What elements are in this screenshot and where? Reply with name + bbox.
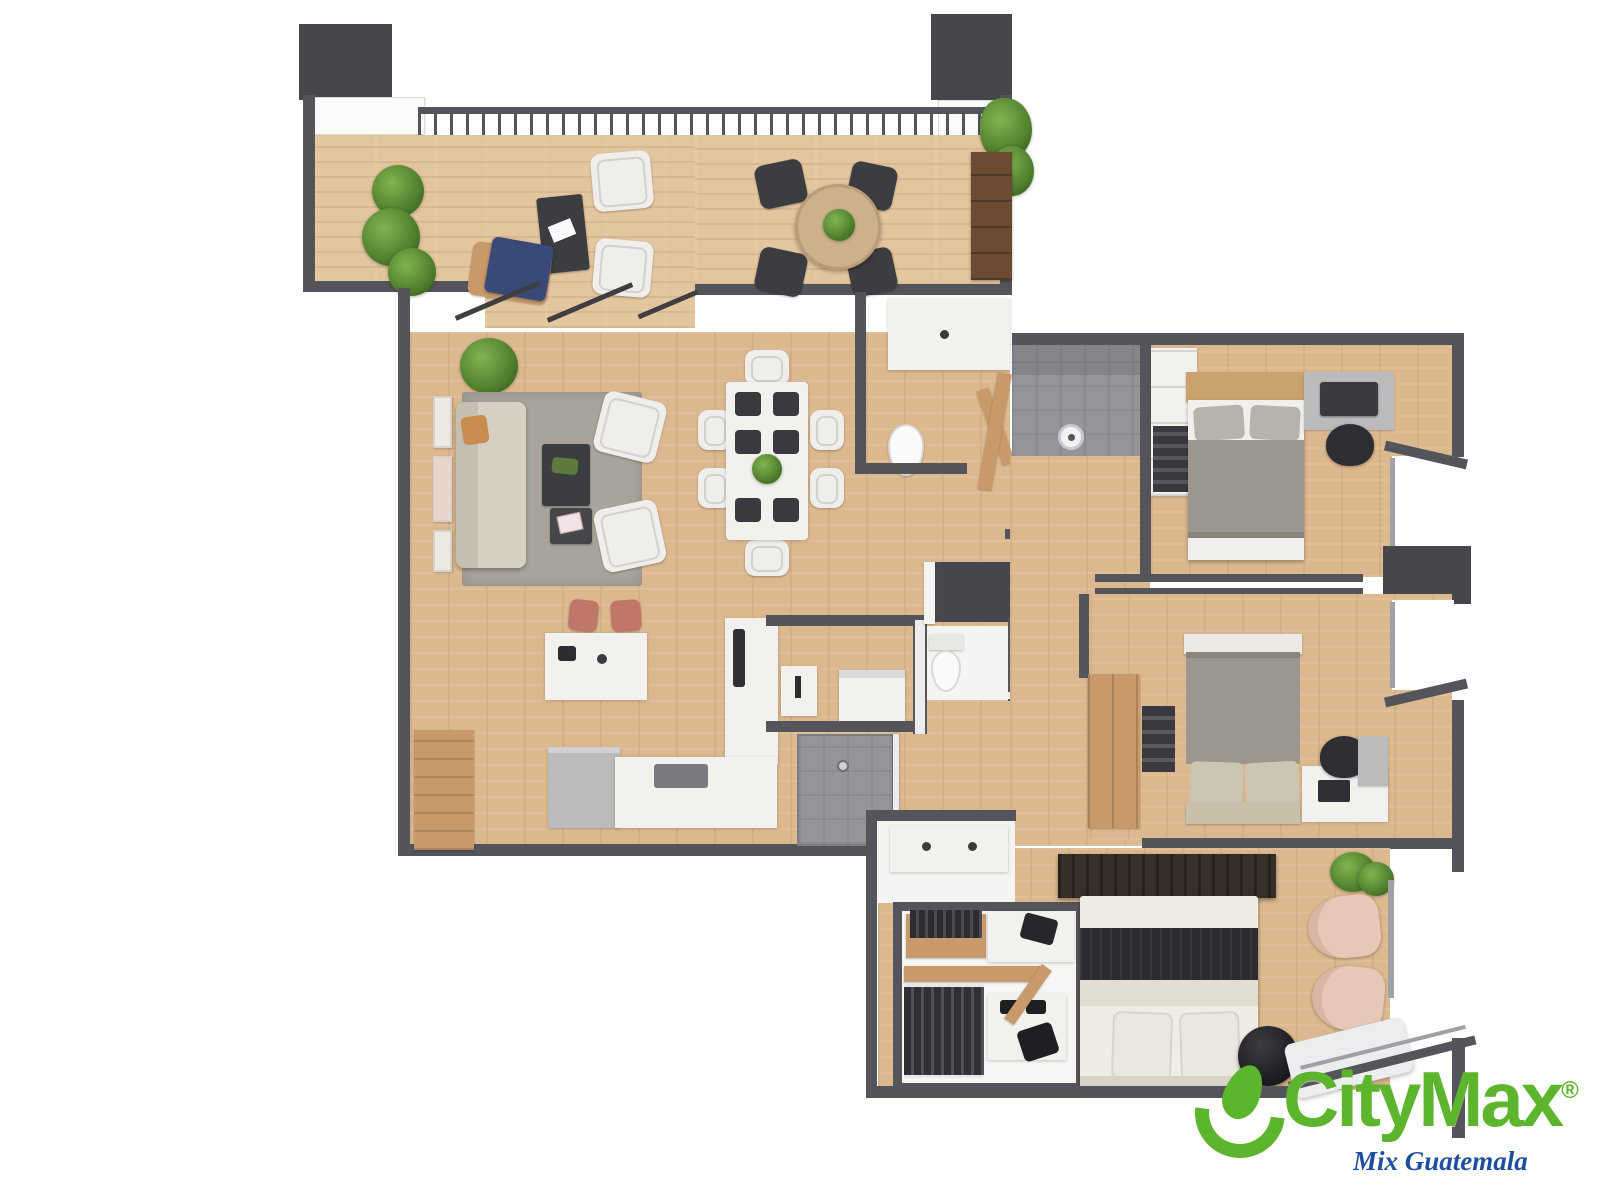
master-headboard-wall: [1058, 854, 1276, 898]
placemat: [735, 430, 761, 454]
island-sink: [558, 646, 576, 661]
outdoor-chair: [590, 149, 655, 212]
bedroom1-left-wall: [1140, 345, 1151, 577]
bed2-pillow: [1245, 761, 1300, 806]
structural-column-top-right: [931, 14, 1012, 100]
railing-top-bar: [418, 107, 1012, 114]
armchair: [592, 498, 668, 574]
kitchen-island: [545, 633, 647, 700]
vanity-faucet: [940, 330, 949, 339]
closet-shelf-items: [1153, 426, 1193, 492]
bed2-duvet: [1186, 652, 1300, 764]
apartment-floor-plan: CityMax® Mix Guatemala: [0, 0, 1600, 1200]
powder-toilet-tank: [929, 634, 963, 650]
coffee-table-tray: [551, 457, 579, 476]
vanity-faucet: [968, 842, 977, 851]
refrigerator: [548, 747, 620, 828]
washer: [839, 670, 905, 722]
dining-centerpiece-plant: [752, 454, 782, 484]
living-corner-plant: [460, 338, 518, 394]
bedroom-divider-wall: [1095, 574, 1363, 582]
master-bath-vanity: [890, 826, 1008, 872]
cooktop: [654, 764, 708, 788]
office-chair: [1326, 424, 1374, 466]
closet-wood-band: [904, 966, 1040, 982]
bed1-pillow: [1249, 405, 1301, 442]
bed1-headboard: [1186, 372, 1306, 402]
shower-room-upper-band: [1012, 345, 1142, 375]
right-outer-wall-upper: [1452, 333, 1464, 457]
utility-faucet: [795, 676, 801, 698]
parapet-top-left: [311, 97, 425, 135]
master-left-wall: [866, 810, 877, 1098]
wall-frame-art: [433, 396, 452, 448]
master-pillow: [1111, 1011, 1173, 1081]
master-window-glazing: [1388, 880, 1394, 998]
master-bay-white: [1395, 872, 1465, 1004]
window-bay-white: [1392, 456, 1454, 552]
bed2-footboard: [1184, 634, 1302, 654]
bedroom2-shelf: [1142, 706, 1175, 772]
terrace-planter-plant: [388, 248, 436, 296]
dining-chair: [810, 468, 844, 508]
desk-monitor: [1320, 382, 1378, 416]
coffee-table: [542, 444, 590, 506]
dining-chair: [745, 540, 789, 576]
guest-bath-vanity: [888, 298, 1010, 370]
railing-balusters: [418, 114, 1012, 135]
guest-bath-bottom-wall: [855, 463, 967, 474]
window-glazing: [1390, 458, 1395, 550]
kitchen-wood-panel: [414, 730, 474, 850]
dining-chair: [810, 410, 844, 450]
master-bed-fold: [1080, 980, 1258, 1006]
sofa-pillow-orange: [460, 414, 490, 445]
citymax-logo: CityMax® Mix Guatemala: [1195, 1056, 1595, 1186]
closet-hanging-clothes-dark: [910, 910, 982, 938]
shower-drain: [837, 760, 849, 772]
bedroom2-nightstand: [1358, 736, 1388, 786]
island-faucet: [597, 654, 607, 664]
bed1-pillow: [1193, 404, 1245, 441]
desk-laptop: [1318, 780, 1350, 802]
terrace-wood-cabinet: [971, 152, 1012, 280]
utility-top-wall: [766, 615, 924, 626]
citymax-wordmark: CityMax®: [1283, 1060, 1579, 1138]
table-centerpiece-plant: [823, 209, 855, 241]
vanity-faucet: [922, 842, 931, 851]
placemat: [773, 392, 799, 416]
wall-frame-art: [433, 530, 452, 572]
bedroom2-wardrobe: [1088, 674, 1140, 828]
closet-hanging-clothes-dark: [904, 984, 984, 1078]
window-glazing: [1390, 602, 1395, 688]
counter-sink-slot: [733, 629, 745, 687]
placemat: [735, 392, 761, 416]
hallway-bedroom2-wall: [1079, 594, 1089, 678]
utility-bottom-wall: [766, 721, 924, 732]
citymax-tagline: Mix Guatemala: [1353, 1148, 1528, 1175]
placemat: [735, 498, 761, 522]
living-left-wall: [398, 288, 410, 854]
bedroom-wing-top-wall: [1012, 333, 1464, 345]
bed1-duvet: [1188, 440, 1304, 538]
right-outer-wall-mid: [1452, 700, 1464, 848]
hall-cabinet-end-cap: [924, 562, 935, 624]
wall-frame-art: [433, 456, 452, 522]
bed2-headboard-bench: [1186, 802, 1300, 824]
registered-mark: ®: [1561, 1077, 1579, 1104]
shower-head-center: [1068, 434, 1075, 441]
bar-stool-red: [610, 599, 642, 632]
structural-column-top-left: [299, 24, 392, 100]
guest-bath-left-wall: [855, 292, 866, 474]
bed2-pillow: [1189, 761, 1243, 805]
master-bath-top-wall: [866, 810, 1016, 821]
placemat: [773, 498, 799, 522]
window-bay-white: [1392, 600, 1454, 690]
dining-chair: [745, 350, 789, 386]
placemat: [773, 430, 799, 454]
citymax-name: CityMax: [1283, 1055, 1561, 1143]
bar-stool-red: [567, 599, 599, 633]
utility-right-wall: [913, 620, 927, 734]
terrace-left-wall: [303, 95, 315, 291]
master-bed-dark-blanket: [1080, 928, 1258, 980]
